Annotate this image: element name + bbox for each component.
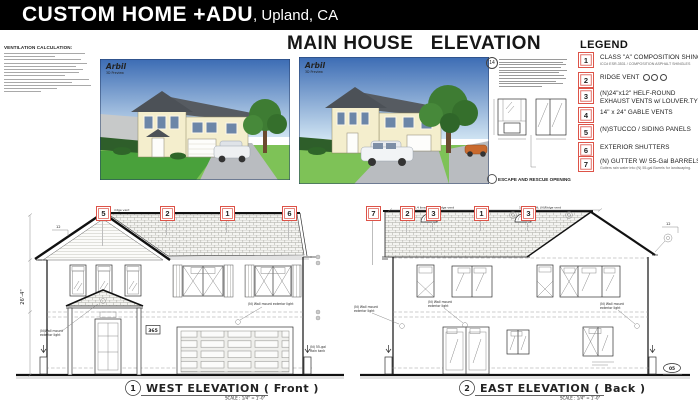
ridge-vent-icon xyxy=(651,74,658,81)
bush xyxy=(308,147,326,155)
address-number: 365 xyxy=(148,328,158,334)
legend-title: LEGEND xyxy=(580,39,628,51)
drawing-sheet: CUSTOM HOME +ADU , Upland, CA MAIN HOUSE… xyxy=(0,0,698,414)
note-ref-bubble: 14 xyxy=(486,57,498,69)
callout-box: 2 xyxy=(160,206,175,221)
level-markers xyxy=(316,255,320,320)
callout-box: 5 xyxy=(96,206,111,221)
render-back-view: Arbil 3D Preview xyxy=(299,57,489,184)
legend-label: (N) GUTTER W/ 55-Gal BARRELS xyxy=(600,158,698,165)
shuttered-window-group-1 xyxy=(173,265,233,297)
legend-key-box: 7 xyxy=(578,156,594,172)
watermark: Arbil xyxy=(304,61,325,70)
note-text: exterior light xyxy=(428,304,449,308)
project-title: CUSTOM HOME +ADU xyxy=(22,3,253,27)
wall-light-icon xyxy=(400,324,405,329)
legend-sub: ICC# ESR-3531 / COMPOSITION ASPHALT SHIN… xyxy=(600,62,690,66)
callout-leader xyxy=(226,219,227,233)
downspout xyxy=(304,357,311,374)
ridge-vent-icon xyxy=(660,74,667,81)
view-title: 1 WEST ELEVATION ( Front ) SCALE : 1/4" … xyxy=(126,381,319,401)
french-doors xyxy=(443,327,489,374)
ridge-vent-icon xyxy=(643,74,650,81)
legend-label: 14" x 24" GABLE VENTS xyxy=(600,109,673,116)
wall-light-icon xyxy=(635,324,640,329)
pitch-value: 12 xyxy=(56,225,61,229)
view-title-text: WEST ELEVATION ( Front ) xyxy=(146,382,319,395)
note-text: exterior light xyxy=(354,309,375,313)
legend-sub: Gutters rain water into (N) 55-gal Barre… xyxy=(600,166,691,170)
sheet-title: MAIN HOUSE ELEVATION xyxy=(287,33,541,55)
watermark-sub: 3D Preview xyxy=(305,70,323,74)
watermark: Arbil xyxy=(105,62,126,71)
garage-door xyxy=(177,327,293,374)
callout-box: 1 xyxy=(220,206,235,221)
front-door xyxy=(95,312,121,374)
roof xyxy=(35,213,316,260)
project-location: , Upland, CA xyxy=(253,7,338,24)
ventilation-calculation-block: VENTILATION CALCULATION: xyxy=(4,45,96,94)
callout-leader xyxy=(372,219,373,265)
callout-leader xyxy=(406,219,407,233)
view-scale: SCALE : 1/4" = 1'-0" xyxy=(560,396,601,401)
window-diagrams xyxy=(492,97,570,171)
dimension-left: 26'-4" xyxy=(20,214,32,377)
height-dimension: 26'-4" xyxy=(20,289,26,305)
detail-marker-icon xyxy=(664,234,672,242)
pitch-value: 12 xyxy=(666,222,671,226)
detail-ref-number: 05 xyxy=(669,366,675,372)
legend-label: (N)STUCCO / SIDING PANELS xyxy=(600,126,691,133)
render-front-view: Arbil 3D Preview xyxy=(100,59,290,180)
header-bar: CUSTOM HOME +ADU , Upland, CA xyxy=(0,0,698,30)
view-title-text: EAST ELEVATION ( Back ) xyxy=(480,382,646,395)
view-scale: SCALE : 1/4" = 1'-0" xyxy=(225,396,266,401)
note-text: exterior light xyxy=(600,306,621,310)
legend-key-box: 1 xyxy=(578,52,594,68)
escape-rescue-caption: ESCAPE AND RESCUE OPENING xyxy=(498,177,571,182)
callout-leader xyxy=(288,219,289,239)
callout-box: 6 xyxy=(282,206,297,221)
note-text: exterior light xyxy=(40,333,61,337)
fine-print-lines xyxy=(499,59,570,89)
legend-label: CLASS "A" COMPOSITION SHINGLES xyxy=(600,54,698,61)
legend-key-box: 5 xyxy=(578,124,594,140)
legend-label: RIDGE VENT xyxy=(600,74,667,81)
bush xyxy=(113,147,131,155)
escape-opening-icon xyxy=(487,174,497,184)
callout-box: 7 xyxy=(366,206,381,221)
callout-box: 1 xyxy=(474,206,489,221)
callout-box: 3 xyxy=(426,206,441,221)
ridge-note: ridge vent xyxy=(114,208,130,212)
legend-key-box: 3 xyxy=(578,88,594,104)
front-door xyxy=(347,133,358,153)
east-elevation-drawing: (N) Wall mount exterior light (N) Wall m… xyxy=(352,205,698,400)
view-number: 1 xyxy=(130,384,136,393)
legend-label: (N)24"x12" HELF-ROUND xyxy=(600,90,676,97)
callout-leader xyxy=(102,219,103,246)
legend-label: EXTERIOR SHUTTERS xyxy=(600,144,670,151)
ventilation-calc-heading: VENTILATION CALCULATION: xyxy=(4,45,96,50)
watermark-sub: 3D Preview xyxy=(106,71,124,75)
pitch-marker: 12 xyxy=(52,225,68,236)
legend-key-box: 4 xyxy=(578,107,594,123)
note-text: Rain tank xyxy=(310,349,325,353)
lower-window-2 xyxy=(583,327,614,365)
escape-rescue-note: 14 ESCAPE AND RESCUE OPENING xyxy=(486,57,572,188)
view-title: 2 EAST ELEVATION ( Back ) SCALE : 1/4" =… xyxy=(460,381,646,401)
callout-box: 2 xyxy=(400,206,415,221)
wall-light-notes: (N) Wall mount exterior light (N) Wall m… xyxy=(354,300,639,328)
wall-light-icon xyxy=(236,320,241,325)
shuttered-window-group-2 xyxy=(245,265,301,297)
garage-light-note: (N) Wall mount exterior light xyxy=(236,302,295,324)
callout-box: 3 xyxy=(521,206,536,221)
downspout xyxy=(40,357,47,374)
detail-ref-05: 05 xyxy=(663,364,682,375)
callout-leader xyxy=(166,219,167,235)
pitch-marker: 12 xyxy=(662,222,678,233)
bush xyxy=(170,153,186,160)
west-elevation-drawing: 365 (N)Wall mount exterior light (N) Wal… xyxy=(10,205,350,400)
legend-label-line2: EXHAUST VENTS w/ LOUVER.TYP xyxy=(600,98,698,105)
front-door xyxy=(152,138,164,157)
note-text: (N) Wall mount exterior light xyxy=(248,302,294,306)
legend-key-box: 2 xyxy=(578,72,594,88)
fine-print-lines xyxy=(4,53,96,92)
lower-window-1 xyxy=(507,330,529,354)
view-number: 2 xyxy=(464,384,470,393)
roof xyxy=(382,211,658,259)
address-plaque: 365 xyxy=(146,326,160,335)
